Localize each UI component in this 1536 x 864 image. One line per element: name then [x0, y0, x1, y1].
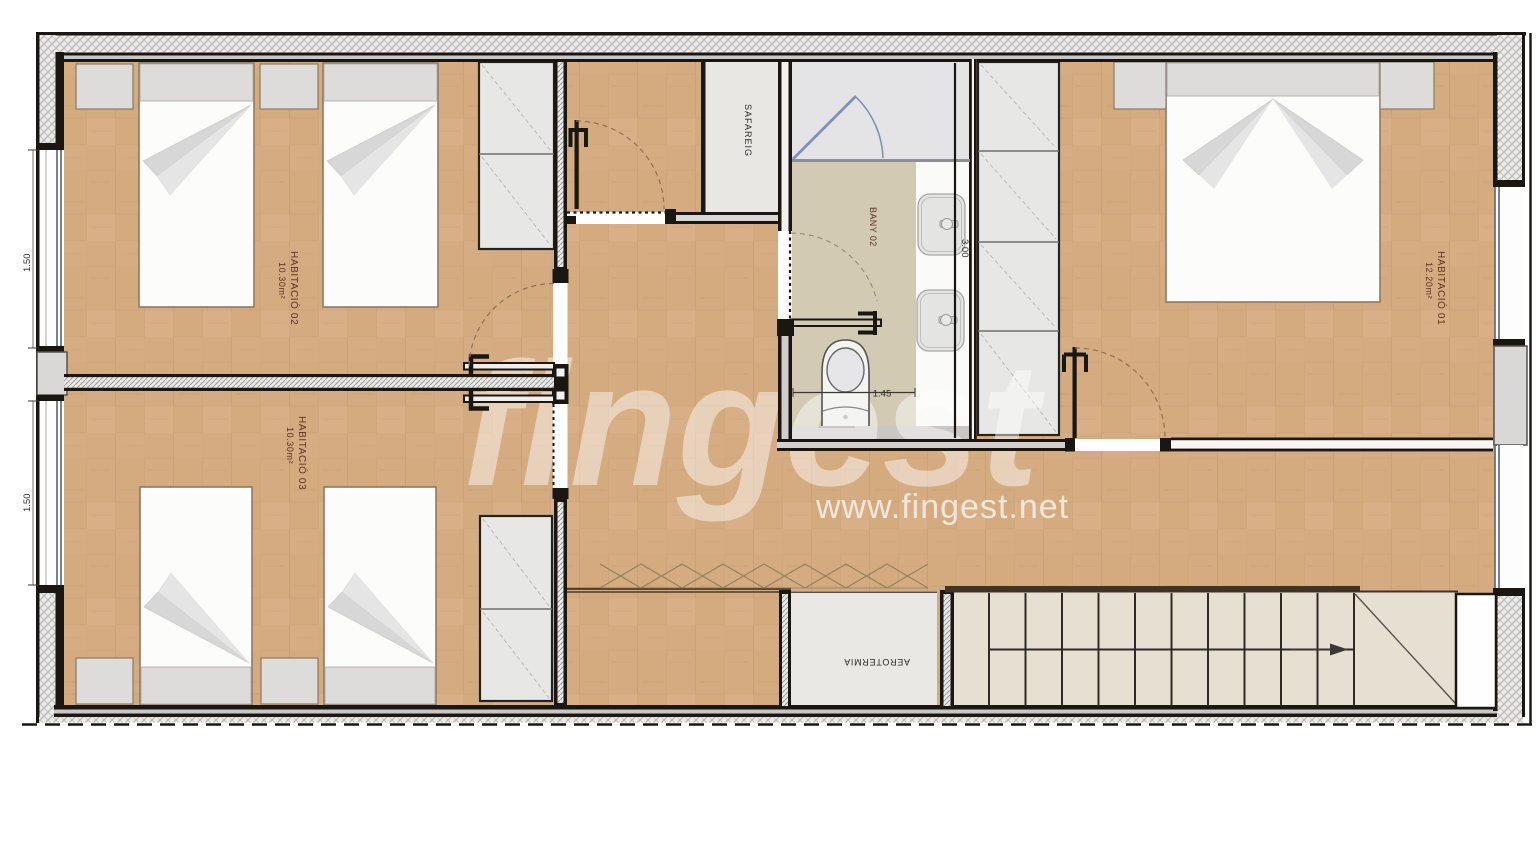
svg-text:1.50: 1.50: [22, 494, 33, 513]
svg-text:BANY 02: BANY 02: [868, 207, 878, 247]
svg-text:10.30m²: 10.30m²: [277, 262, 287, 299]
svg-text:www.fingest.net: www.fingest.net: [815, 488, 1069, 526]
svg-text:HABITACIÓ 01: HABITACIÓ 01: [1435, 251, 1448, 325]
svg-text:1.50: 1.50: [22, 254, 33, 273]
svg-text:1.45: 1.45: [873, 389, 892, 400]
svg-text:HABITACIÓ 03: HABITACIÓ 03: [296, 416, 309, 490]
svg-text:3.00: 3.00: [959, 239, 970, 258]
svg-text:SAFAREIG: SAFAREIG: [743, 104, 753, 157]
svg-text:HABITACIÓ 02: HABITACIÓ 02: [288, 251, 301, 325]
svg-text:AEROTERMIA: AEROTERMIA: [843, 657, 910, 667]
svg-text:10.30m²: 10.30m²: [285, 427, 295, 464]
svg-text:12.20m²: 12.20m²: [1424, 262, 1434, 299]
